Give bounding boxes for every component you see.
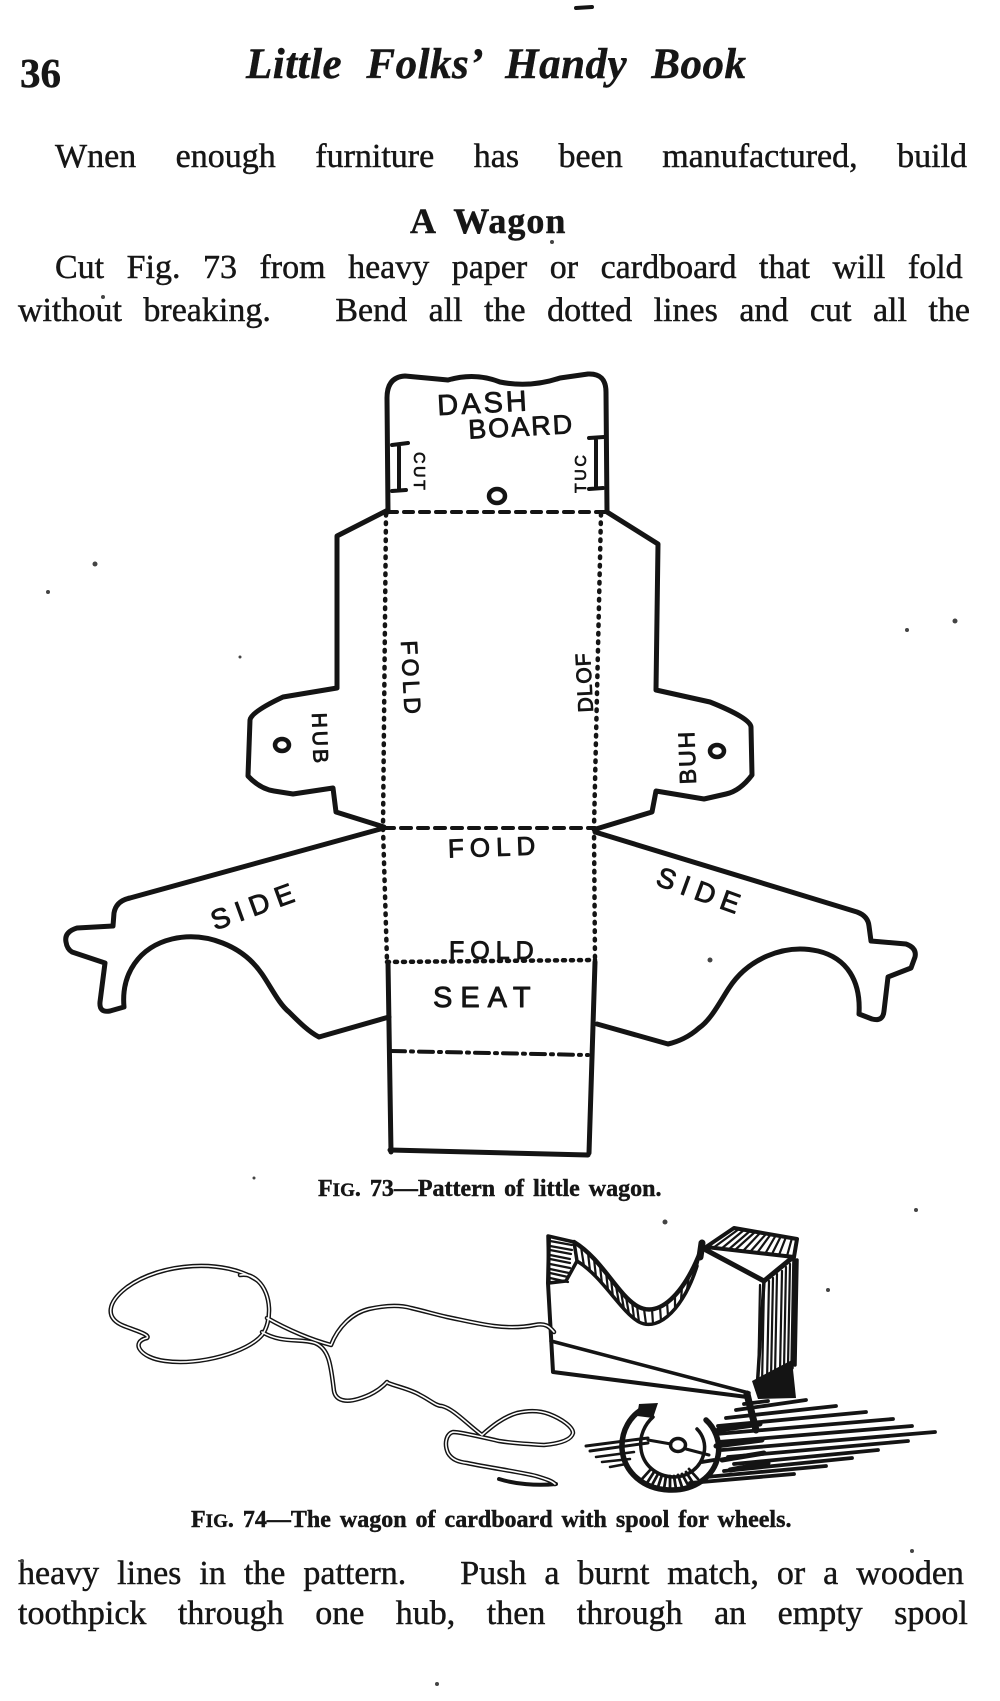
svg-text:HUB: HUB xyxy=(307,712,332,766)
svg-text:FOLD: FOLD xyxy=(447,830,541,863)
svg-text:BOARD: BOARD xyxy=(467,409,574,445)
svg-text:FOLD: FOLD xyxy=(396,640,426,719)
svg-text:FOLD: FOLD xyxy=(449,937,540,965)
svg-text:SEAT: SEAT xyxy=(433,982,539,1014)
svg-text:BUH: BUH xyxy=(673,729,701,784)
svg-text:CUT: CUT xyxy=(410,452,427,492)
svg-text:SIDE: SIDE xyxy=(206,875,304,936)
svg-text:TUC: TUC xyxy=(573,453,590,493)
svg-text:SIDE: SIDE xyxy=(653,861,751,922)
svg-text:DLOF: DLOF xyxy=(572,652,598,713)
